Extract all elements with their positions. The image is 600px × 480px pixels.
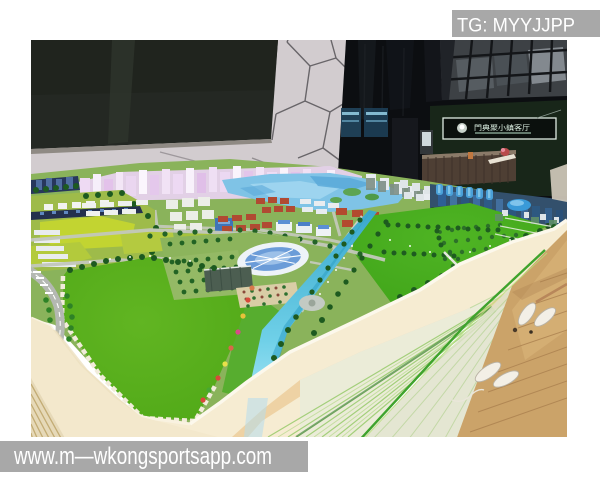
svg-text:www.m—wkongsportsapp.com: www.m—wkongsportsapp.com	[13, 443, 272, 470]
svg-text:門典聚小鎮客厅: 門典聚小鎮客厅	[474, 123, 530, 132]
svg-text:TG: MYYJJPP: TG: MYYJJPP	[457, 16, 575, 37]
